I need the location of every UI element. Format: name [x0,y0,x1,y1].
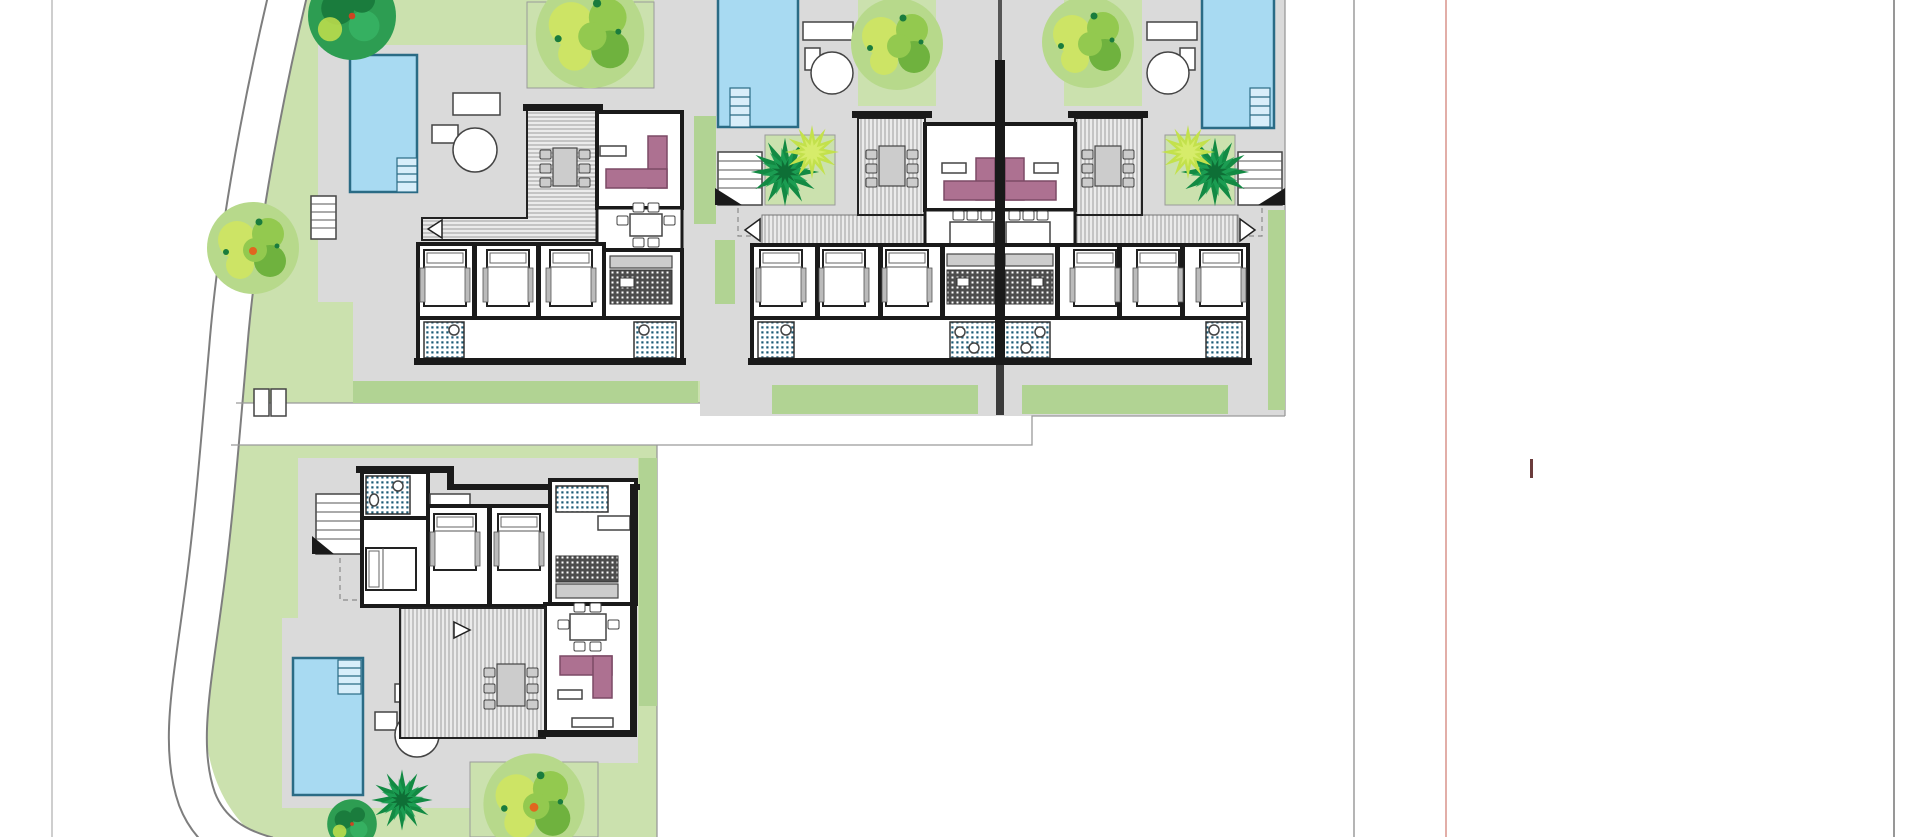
sun-lounger [1147,22,1197,40]
gate-post [254,389,269,416]
bed [420,250,470,306]
bed [430,514,480,570]
tree-fruit [207,202,299,294]
site-plan-svg [0,0,1920,837]
round-table [453,128,497,172]
villa-1-bathroom [424,322,464,358]
site-plan-page [0,0,1920,837]
villa-4-deck-dining [484,664,538,709]
villa-4-hedge-east [639,458,657,706]
kitchen-island [947,270,995,304]
tv-bench [600,146,626,156]
bed [756,250,806,306]
red-annotation-mark [1530,459,1533,478]
sun-lounger [803,22,853,40]
bed [819,250,869,306]
bed [1070,250,1120,306]
villa-1-deck-dining [540,148,590,187]
villa-2-bathroom [758,322,794,358]
villa-2-walkway [762,215,925,245]
bench [572,718,613,727]
bed [483,250,533,306]
bed [366,548,416,590]
villa-3-bathroom [1004,322,1050,358]
villa-2-bathroom [950,322,996,358]
villa-3-bathroom [1206,322,1242,358]
kitchen-island [1005,270,1053,304]
side-table [375,712,397,730]
side-table [942,163,966,173]
bed [1133,250,1183,306]
bed [494,514,544,570]
villa-1-hedge-east [715,240,735,304]
villa-2-ext-stairs [715,152,762,205]
villa-2-hedge-south [772,385,978,414]
villa-4-bathroom [362,472,428,518]
villa-2-deck-dining [866,146,918,187]
villa-4-kitchen [550,480,636,604]
villa-3-hedge-south [1022,385,1228,414]
bed [882,250,932,306]
villa-4-living-room [545,603,634,732]
villa-1-living-room [597,112,682,208]
villa-3-hedge-east [1268,210,1285,410]
villa-4-ext-stairs [312,494,364,554]
villa-1-sofa [606,169,667,188]
side-table [1034,163,1058,173]
gate-post [271,389,286,416]
tree-light [851,0,943,90]
villa-3-walkway [1075,215,1238,245]
villa-1-hedge-east [694,116,716,224]
round-table [811,52,853,94]
villa-1-hedge-south [353,381,698,403]
tv-bench [558,690,582,699]
villa-1-pool [350,55,417,192]
villa-4-pool [293,658,363,795]
villa-3-pool [1202,0,1274,128]
party-wall [995,0,1005,415]
bed [546,250,596,306]
bed [1196,250,1246,306]
villa-1-entry-steps [311,196,336,239]
villa-3-deck-dining [1082,146,1134,187]
villa-3-sofa [1005,181,1056,200]
round-table [1147,52,1189,94]
villa-4-sofa [593,656,612,698]
kitchen-island [610,270,672,304]
sun-lounger [453,93,500,115]
villa-2-sofa [944,181,995,200]
side-table [432,125,458,143]
villa-3-ext-stairs [1238,152,1285,205]
villa-1-bathroom [634,322,676,358]
tree-light [1042,0,1134,88]
villa-2-pool [718,0,798,127]
